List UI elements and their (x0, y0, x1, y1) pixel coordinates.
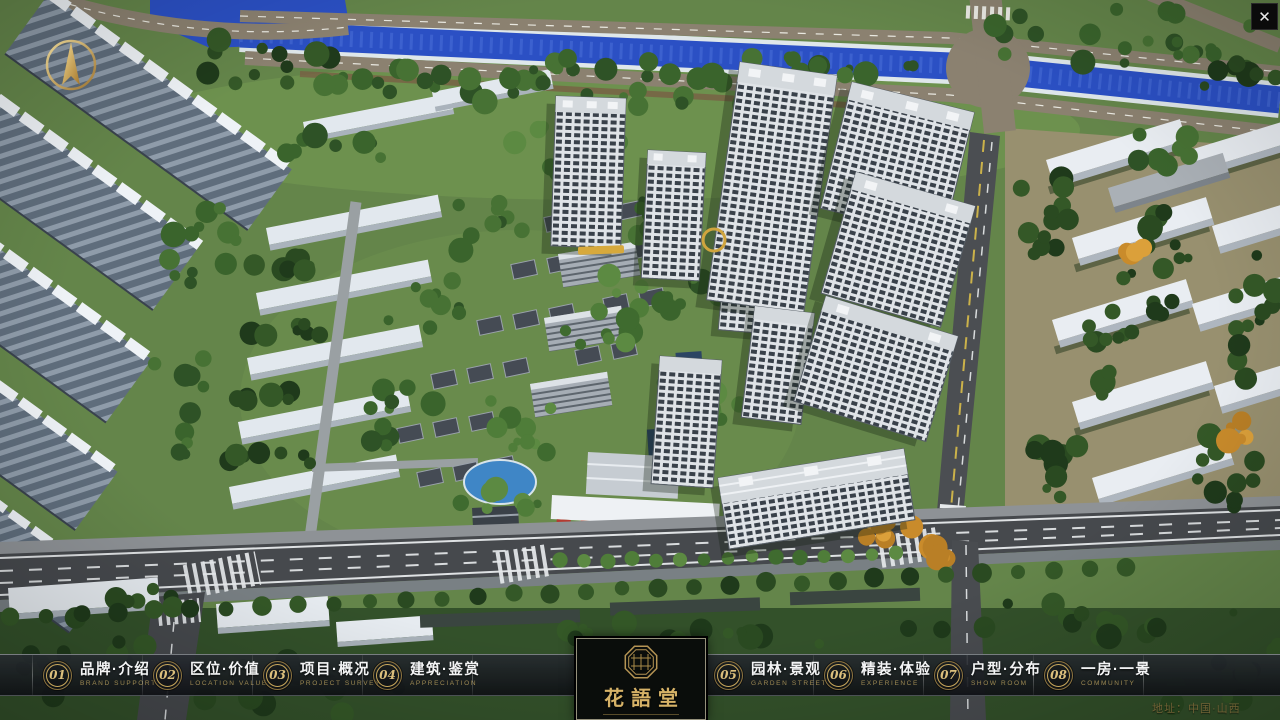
menu-item-number: 06 (827, 664, 850, 687)
menu-item-floorplans[interactable]: 07 户型·分布 SHOW ROOM (924, 655, 1033, 695)
menu-number-badge: 06 (824, 661, 853, 690)
menu-item-caption: COMMUNITY (1081, 681, 1151, 688)
brand-logo-panel: 花語堂 (576, 638, 706, 720)
menu-number-badge: 04 (373, 661, 402, 690)
menu-item-room-views[interactable]: 08 一房·一景 COMMUNITY (1034, 655, 1143, 695)
brand-name: 花語堂 (597, 682, 685, 711)
menu-item-architecture[interactable]: 04 建筑·鉴赏 APPRECIATION (363, 655, 472, 695)
menu-group-right: 05 园林·景观 GARDEN STREET 06 精装·体验 EXPERIEN… (704, 655, 1280, 695)
menu-item-text: 户型·分布 SHOW ROOM (971, 663, 1041, 687)
menu-item-number: 04 (376, 664, 399, 687)
menu-number-badge: 02 (153, 661, 182, 690)
menu-item-location-value[interactable]: 02 区位·价值 LOCATION VALUE (143, 655, 252, 695)
menu-item-label: 建筑·鉴赏 (410, 663, 480, 678)
menu-item-label: 户型·分布 (971, 663, 1041, 678)
menu-item-landscape[interactable]: 05 园林·景观 GARDEN STREET (704, 655, 813, 695)
menu-number-badge: 05 (714, 661, 743, 690)
menu-item-caption: EXPERIENCE (861, 681, 931, 688)
menu-separator (1143, 655, 1144, 695)
menu-item-number: 01 (46, 664, 69, 687)
brand-seal-icon (623, 644, 659, 680)
menu-number-badge: 03 (263, 661, 292, 690)
menu-item-label: 精装·体验 (861, 663, 931, 678)
menu-group-left: 01 品牌·介绍 BRAND SUPPORT 02 区位·价值 LOCATION… (0, 655, 576, 695)
menu-item-label: 一房·一景 (1081, 663, 1151, 678)
menu-item-number: 07 (937, 664, 960, 687)
menu-item-project-overview[interactable]: 03 项目·概况 PROJECT SURVEY (253, 655, 362, 695)
menu-bar-spacer (0, 655, 32, 695)
menu-item-text: 精装·体验 EXPERIENCE (861, 663, 931, 687)
menu-separator (472, 655, 473, 695)
menu-item-brand-intro[interactable]: 01 品牌·介绍 BRAND SUPPORT (33, 655, 142, 695)
menu-item-text: 建筑·鉴赏 APPRECIATION (410, 663, 480, 687)
aerial-masterplan-render (0, 0, 1280, 720)
compass-icon (44, 38, 98, 92)
menu-item-number: 02 (156, 664, 179, 687)
address-text: 地址：中国·山西 (1152, 700, 1241, 716)
menu-item-number: 08 (1047, 664, 1070, 687)
close-icon: ✕ (1258, 8, 1271, 26)
menu-number-badge: 07 (934, 661, 963, 690)
presentation-window: ✕ 01 品牌·介绍 BRAND SUPPORT 02 区位·价值 LOCATI… (0, 0, 1280, 720)
menu-item-interior-experience[interactable]: 06 精装·体验 EXPERIENCE (814, 655, 923, 695)
close-button[interactable]: ✕ (1251, 3, 1278, 30)
menu-item-caption: SHOW ROOM (971, 681, 1041, 688)
menu-item-number: 05 (717, 664, 740, 687)
menu-number-badge: 01 (43, 661, 72, 690)
menu-item-number: 03 (266, 664, 289, 687)
menu-number-badge: 08 (1044, 661, 1073, 690)
brand-divider (603, 714, 679, 715)
menu-item-caption: APPRECIATION (410, 681, 480, 688)
menu-item-text: 一房·一景 COMMUNITY (1081, 663, 1151, 687)
